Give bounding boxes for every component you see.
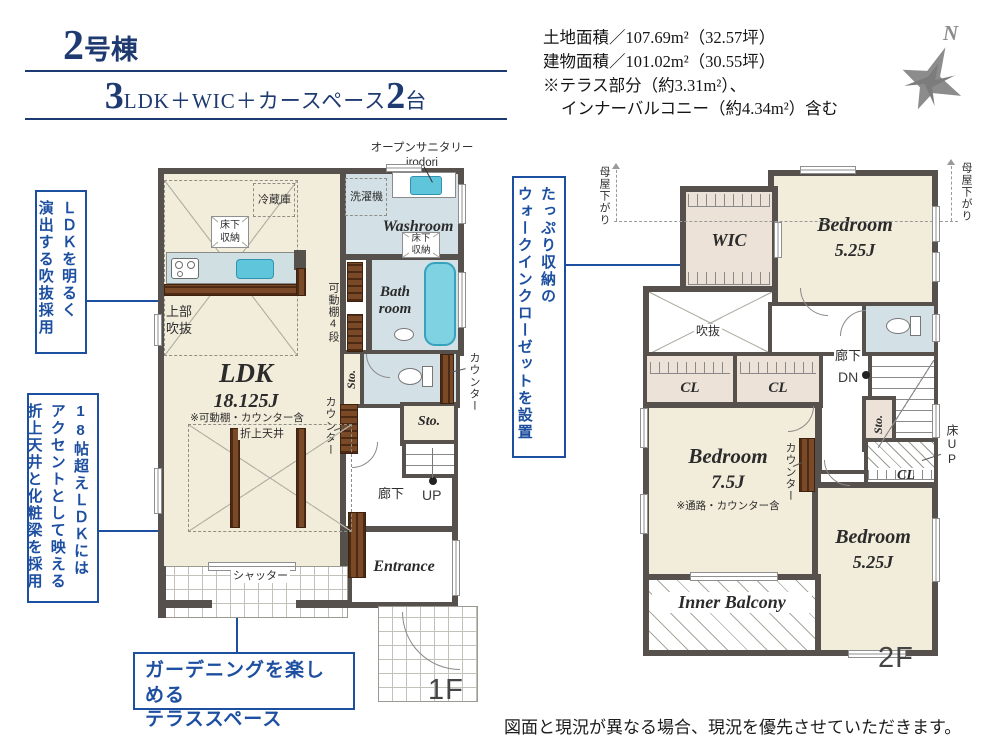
window <box>932 252 940 282</box>
window <box>458 184 466 224</box>
window <box>154 468 162 514</box>
bedroom3-name: Bedroom <box>808 526 938 549</box>
bathtub-icon <box>424 262 456 346</box>
bedroom2-counter <box>799 438 815 492</box>
callout-wic-col1: たっぷり収納の <box>536 186 559 448</box>
terrace-wall-seg <box>166 600 212 608</box>
moya-left-label: 母屋下がり <box>596 166 612 228</box>
window <box>932 206 940 242</box>
cl2-hanger <box>740 362 816 374</box>
stairs-1f <box>402 440 458 478</box>
callout-terrace-line2: テラススペース <box>145 708 343 733</box>
bedroom1-name: Bedroom <box>790 214 920 237</box>
area-info: 土地面積／107.69m²（32.57坪） 建物面積／101.02m²（30.5… <box>543 26 838 121</box>
callout-ceiling: 18帖超えＬＤＫには アクセントとして映える 折上天井と化粧梁を採用 <box>27 393 99 603</box>
terrace-wall-seg <box>296 600 348 608</box>
layout-text: LDK＋WIC＋カースペース <box>124 89 386 113</box>
inner-balcony-label: Inner Balcony <box>652 592 812 613</box>
ldk-corridor-door-arc <box>352 442 378 468</box>
layout-tail: 台 <box>405 89 427 113</box>
terrace-wall-left <box>158 566 166 618</box>
inner-balcony <box>643 574 821 656</box>
wall-segment <box>452 474 458 530</box>
bath-stool-icon <box>394 328 414 341</box>
kitchen-sink-icon <box>236 259 274 279</box>
bathroom-label: Bath room <box>372 284 418 319</box>
floor-up-label: 床UP <box>944 424 961 476</box>
moya-right-label: 母屋下がり <box>958 162 974 224</box>
land-area: 土地面積／107.69m²（32.57坪） <box>543 26 838 50</box>
floorplan-page: 2号棟 3LDK＋WIC＋カースペース2台 土地面積／107.69m²（32.5… <box>0 0 1000 749</box>
compass: N <box>885 18 975 122</box>
callout-ceiling-col3: 折上天井と化粧梁を採用 <box>22 403 45 593</box>
coffered-ceiling-label: 折上天井 <box>238 427 286 441</box>
movable-shelf-label: 可動棚4段 <box>325 282 341 352</box>
underfloor-storage-ldk-label: 床下収納 <box>218 219 242 245</box>
balcony-sliding-door <box>690 572 778 581</box>
callout-void-col2: 演出する吹抜採用 <box>34 200 57 344</box>
open-sanitary-line2: irodori <box>357 156 487 171</box>
shutter-label: シャッター <box>231 569 290 583</box>
window <box>932 404 940 438</box>
layout-count-cars: 2 <box>386 75 405 117</box>
bedroom1-size: 5.25J <box>790 240 920 261</box>
open-sanitary-label: オープンサニタリー irodori <box>357 141 487 171</box>
moya-left-arrow <box>612 163 620 169</box>
callout-terrace-line1: ガーデニングを楽しめる <box>145 659 343 708</box>
wic-opening <box>774 222 782 258</box>
building-title: 2号棟 <box>63 22 138 70</box>
toilet-2f-tank-icon <box>910 316 921 336</box>
kitchen-bar-counter <box>164 284 306 296</box>
callout-void-col1: ＬＤＫを明るく <box>57 200 80 344</box>
terrace-note: ※テラス部分（約3.31m²）、 <box>543 74 838 98</box>
burner-icon <box>177 271 183 277</box>
kitchen-counter-return <box>296 268 306 296</box>
window <box>800 166 856 174</box>
entrance-door-slit <box>452 540 460 596</box>
bathroom-label-line1: Bath <box>372 284 418 301</box>
up-label: UP <box>422 486 441 504</box>
wic-hanger-bottom <box>688 272 770 285</box>
bedroom2-name: Bedroom <box>658 444 798 468</box>
toilet-counter <box>440 354 454 404</box>
title-rule-bottom <box>25 118 507 120</box>
corridor-2f-label: 廊下 <box>834 348 862 365</box>
open-sanitary-line1: オープンサニタリー <box>357 141 487 156</box>
window <box>932 518 940 582</box>
vanity-sink-icon <box>410 176 442 195</box>
compass-north-label: N <box>942 21 959 45</box>
washer-label: 洗濯機 <box>350 190 383 204</box>
bedroom3-size: 5.25J <box>808 552 938 573</box>
corridor-1f-label: 廊下 <box>378 486 404 503</box>
ceiling-beam <box>230 428 240 528</box>
callout-ceiling-col2: アクセントとして映える <box>46 403 69 593</box>
window <box>458 272 466 328</box>
burner-icon <box>187 261 195 269</box>
underfloor-storage-ldk: 床下収納 <box>211 216 249 248</box>
callout-terrace: ガーデニングを楽しめる テラススペース <box>133 652 355 710</box>
cl1-hanger <box>650 362 730 374</box>
window <box>932 314 940 342</box>
void-2f <box>643 286 778 360</box>
cl1-label: CL <box>650 380 730 397</box>
moya-right-line <box>951 166 952 221</box>
stove-icon <box>171 258 199 279</box>
stair-fan-line <box>878 360 934 448</box>
underfloor-storage-wash: 床下収納 <box>402 232 440 258</box>
stair-dn-dot <box>862 371 870 379</box>
cl3-label: CL <box>884 468 928 484</box>
stair-up-line <box>432 448 433 478</box>
dn-label: DN <box>838 368 858 386</box>
disclaimer-text: 図面と現況が異なる場合、現況を優先させていただきます。 <box>504 713 996 738</box>
sto-room-label: Sto. <box>406 414 452 430</box>
upper-void-label: 上部吹抜 <box>166 304 196 338</box>
counter-2f-label: カウンター <box>782 442 798 506</box>
toilet-2f-bowl-icon <box>886 318 910 334</box>
wic-hanger-top <box>688 194 770 207</box>
ceiling-beam <box>296 428 306 528</box>
window <box>640 408 648 448</box>
balcony-note: インナーバルコニー（約4.34m²）含む <box>543 97 838 121</box>
layout-count-rooms: 3 <box>105 75 124 117</box>
burner-icon <box>175 261 183 269</box>
ldk-name: LDK <box>196 358 296 389</box>
wall-stub <box>294 250 306 270</box>
entrance-label: Entrance <box>366 558 442 576</box>
movable-shelf-lower <box>347 314 363 352</box>
cl2-label: CL <box>740 380 816 397</box>
toilet-tank-icon <box>422 366 433 387</box>
moya-left-line <box>616 170 617 221</box>
moya-dashed-line <box>614 221 958 222</box>
building-area: 建物面積／101.02m²（30.55坪） <box>543 50 838 74</box>
moya-right-arrow <box>947 159 955 165</box>
title-rule-top <box>25 70 507 72</box>
refrigerator-label: 冷蔵庫 <box>258 193 291 207</box>
callout-wic: たっぷり収納の ウォークインクローゼットを設置 <box>512 176 566 458</box>
bedroom2-size: 7.5J <box>658 472 798 494</box>
callout-ceiling-col1: 18帖超えＬＤＫには <box>69 403 92 593</box>
floor1-label: 1F <box>428 674 464 707</box>
ldk-size: 18.125J <box>196 390 296 413</box>
stair-up-dot <box>429 477 437 485</box>
void-2f-label: 吹抜 <box>694 324 722 340</box>
washer-marker: 洗濯機 <box>345 178 387 216</box>
sto-small-label: Sto. <box>344 369 359 388</box>
sto-small-label-wrap: Sto. <box>340 352 364 406</box>
counter-right-label: カウンター <box>466 352 482 428</box>
callout-void: ＬＤＫを明るく 演出する吹抜採用 <box>35 190 87 354</box>
ldk-note: ※可動棚・カウンター含 <box>184 412 310 426</box>
floor2-label: 2F <box>878 642 914 675</box>
window <box>154 314 162 346</box>
underfloor-storage-wash-label: 床下収納 <box>409 233 433 258</box>
callout-wic-col2: ウォークインクローゼットを設置 <box>513 186 536 448</box>
window <box>386 164 422 172</box>
movable-shelf-upper <box>347 262 363 302</box>
refrigerator-marker: 冷蔵庫 <box>253 183 295 217</box>
bathroom-label-line2: room <box>372 301 418 318</box>
window <box>640 494 648 534</box>
toilet-bowl-icon <box>398 368 422 385</box>
wic-label: WIC <box>684 230 774 251</box>
coffered-ceiling-text: 折上天井 <box>238 428 286 440</box>
compass-rose-icon: N <box>885 18 975 122</box>
